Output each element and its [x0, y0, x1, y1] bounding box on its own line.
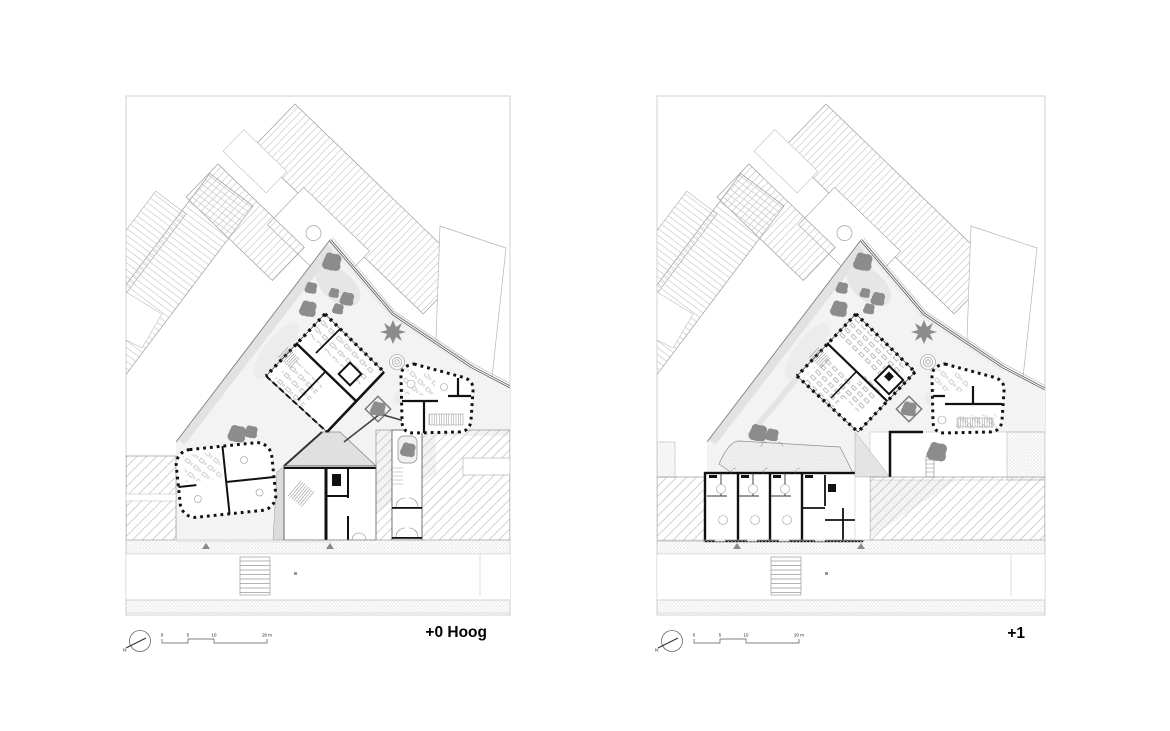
floor-plan-ground — [53, 91, 514, 615]
street-strip — [126, 540, 514, 613]
scale-tick: 5 — [187, 633, 190, 638]
street-strip — [657, 540, 1045, 613]
scale-bar-left: 0 5 10 20 m — [161, 633, 272, 644]
floor-label-ground: +0 Hoog — [425, 624, 487, 641]
scale-tick: 0 — [161, 633, 164, 638]
courtyard-east — [855, 432, 1045, 540]
floor-label-first: +1 — [1007, 625, 1025, 642]
scale-tick: 20 m — [262, 633, 272, 638]
scale-bar-right: 0 5 10 20 m — [693, 633, 804, 644]
drawing-sheet: N 0 5 10 20 m +0 Hoog N 0 5 10 20 m +1 — [0, 0, 1170, 731]
pavilion-southwest — [175, 441, 278, 519]
scale-tick: 5 — [719, 633, 722, 638]
north-label: N — [655, 648, 659, 654]
scale-tick: 0 — [693, 633, 696, 638]
scale-tick: 10 — [212, 633, 217, 638]
north-arrow-right: N — [655, 631, 683, 654]
north-arrow-left: N — [123, 631, 151, 654]
scale-tick: 20 m — [794, 633, 804, 638]
north-label: N — [123, 648, 127, 654]
street-buildings-west — [126, 456, 176, 540]
housing-row — [705, 468, 862, 541]
floor-plan-first — [584, 91, 1045, 615]
scale-tick: 10 — [744, 633, 749, 638]
architectural-drawing: N 0 5 10 20 m +0 Hoog N 0 5 10 20 m +1 — [0, 0, 1170, 731]
